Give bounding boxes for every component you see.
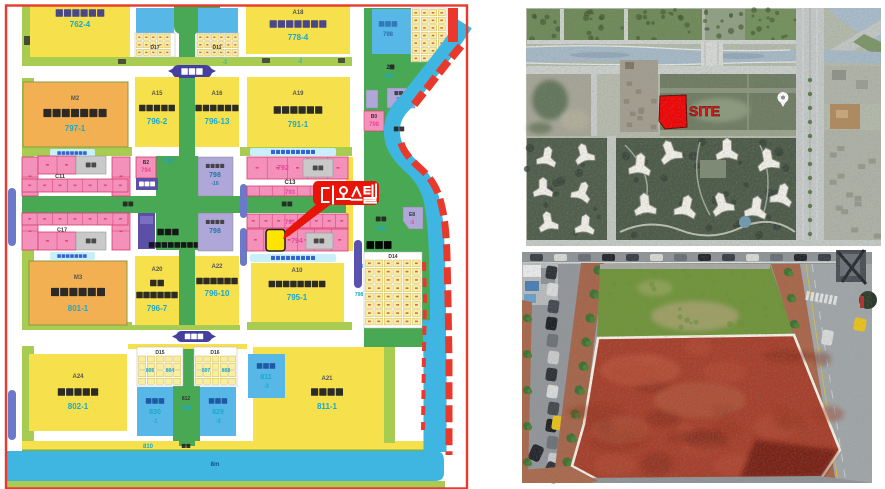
svg-text:-1: -1	[152, 419, 158, 425]
svg-text:811-1: 811-1	[317, 402, 338, 411]
svg-text:A19: A19	[292, 91, 304, 97]
svg-text:795-1: 795-1	[287, 293, 308, 302]
svg-text:-5: -5	[410, 220, 415, 226]
svg-text:-3: -3	[215, 419, 221, 425]
svg-text:798: 798	[383, 32, 394, 38]
svg-text:A21: A21	[321, 376, 333, 382]
svg-text:804: 804	[166, 368, 175, 374]
svg-text:798: 798	[369, 122, 380, 128]
svg-text:A20: A20	[151, 267, 163, 273]
svg-text:793: 793	[285, 190, 296, 196]
svg-text:D11: D11	[213, 45, 222, 51]
svg-text:798: 798	[162, 158, 174, 165]
svg-text:798: 798	[209, 172, 221, 179]
svg-text:829: 829	[212, 409, 224, 416]
svg-text:812: 812	[182, 396, 191, 402]
svg-text:A15: A15	[151, 91, 163, 97]
svg-text:808: 808	[222, 368, 231, 374]
svg-text:802-1: 802-1	[68, 402, 89, 411]
svg-text:B0: B0	[371, 114, 378, 120]
svg-text:100: 100	[384, 74, 395, 80]
svg-text:C13: C13	[284, 180, 296, 186]
svg-text:798: 798	[376, 227, 387, 233]
svg-text:A24: A24	[72, 374, 84, 380]
svg-text:A18: A18	[292, 10, 304, 16]
svg-text:-1: -1	[223, 60, 228, 66]
svg-text:A22: A22	[211, 264, 223, 270]
svg-text:796-10: 796-10	[205, 289, 230, 298]
svg-text:796-2: 796-2	[147, 117, 168, 126]
svg-text:811: 811	[260, 374, 271, 381]
svg-text:796-13: 796-13	[205, 117, 230, 126]
svg-text:D17: D17	[150, 45, 159, 51]
svg-text:801-1: 801-1	[68, 304, 89, 313]
svg-text:M2: M2	[71, 96, 80, 102]
svg-text:D15: D15	[155, 350, 164, 356]
svg-text:810: 810	[143, 444, 154, 450]
svg-text:798: 798	[209, 228, 221, 235]
svg-text:792: 792	[277, 165, 289, 172]
svg-text:D16: D16	[210, 350, 219, 356]
svg-text:D14: D14	[388, 254, 397, 260]
svg-text:809: 809	[181, 406, 192, 412]
svg-text:807: 807	[202, 368, 211, 374]
svg-text:797-1: 797-1	[65, 124, 86, 133]
svg-text:762-4: 762-4	[70, 20, 91, 29]
svg-text:-10: -10	[211, 181, 218, 187]
svg-text:794: 794	[141, 168, 152, 174]
svg-text:M3: M3	[74, 275, 83, 281]
svg-text:A16: A16	[211, 91, 223, 97]
svg-text:794: 794	[291, 238, 303, 245]
svg-text:-3: -3	[263, 384, 269, 390]
svg-text:778-4: 778-4	[288, 33, 309, 42]
svg-text:-2: -2	[298, 59, 303, 65]
svg-text:796-7: 796-7	[147, 304, 168, 313]
svg-text:B2: B2	[143, 160, 150, 166]
svg-text:791-1: 791-1	[288, 120, 309, 129]
svg-text:798: 798	[355, 292, 364, 298]
svg-text:E8: E8	[409, 212, 415, 218]
svg-text:805: 805	[146, 368, 155, 374]
svg-text:8m: 8m	[211, 462, 220, 468]
svg-text:A10: A10	[291, 268, 303, 274]
svg-text:830: 830	[149, 409, 161, 416]
